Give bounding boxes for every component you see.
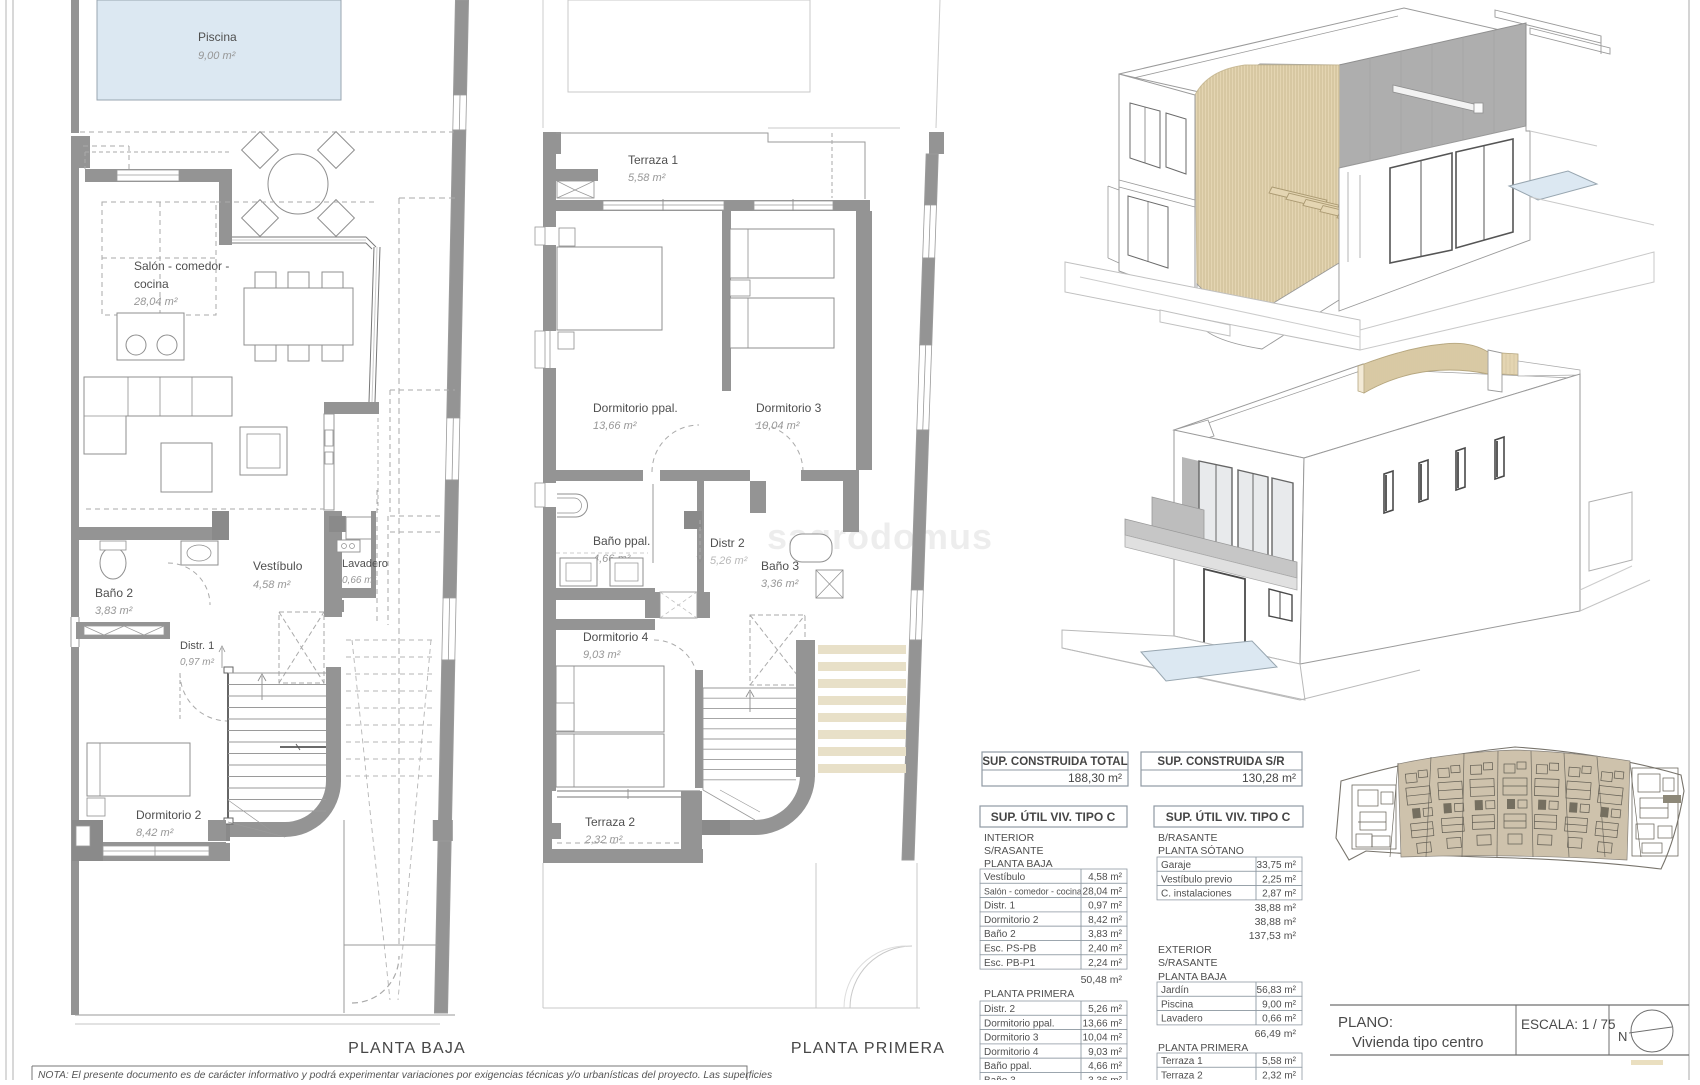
svg-text:INTERIOR: INTERIOR	[984, 832, 1035, 844]
svg-text:8,42 m²: 8,42 m²	[1088, 915, 1123, 926]
svg-text:Distr 2: Distr 2	[710, 536, 745, 550]
svg-text:188,30 m²: 188,30 m²	[1068, 771, 1122, 785]
svg-text:137,53 m²: 137,53 m²	[1249, 930, 1297, 942]
svg-text:Baño 2: Baño 2	[984, 929, 1016, 940]
svg-text:5,26 m²: 5,26 m²	[1088, 1004, 1123, 1015]
svg-text:9,03 m²: 9,03 m²	[1088, 1047, 1123, 1058]
svg-text:3,36 m²: 3,36 m²	[1088, 1076, 1123, 1081]
svg-text:33,75 m²: 33,75 m²	[1257, 860, 1297, 871]
svg-text:Dormitorio 4: Dormitorio 4	[583, 630, 649, 644]
svg-text:Lavadero: Lavadero	[1161, 1014, 1203, 1025]
svg-text:SUP. CONSTRUIDA TOTAL: SUP. CONSTRUIDA TOTAL	[982, 756, 1127, 768]
svg-text:Baño 2: Baño 2	[95, 586, 133, 600]
svg-text:Dormitorio 4: Dormitorio 4	[984, 1047, 1039, 1058]
svg-text:Salón - comedor - cocina: Salón - comedor - cocina	[984, 886, 1082, 896]
svg-text:Esc. PB-P1: Esc. PB-P1	[984, 958, 1036, 969]
svg-text:9,00 m²: 9,00 m²	[198, 50, 236, 62]
svg-text:PLANTA PRIMERA: PLANTA PRIMERA	[984, 988, 1074, 1000]
svg-text:38,88 m²: 38,88 m²	[1255, 902, 1297, 914]
svg-text:2,32 m²: 2,32 m²	[1262, 1070, 1297, 1080]
svg-text:Dormitorio 2: Dormitorio 2	[984, 915, 1039, 926]
svg-text:0,66 m²: 0,66 m²	[342, 575, 377, 586]
svg-text:SUP. CONSTRUIDA S/R: SUP. CONSTRUIDA S/R	[1157, 756, 1285, 768]
svg-text:13,66 m²: 13,66 m²	[1083, 1018, 1123, 1029]
svg-text:PLANTA BAJA: PLANTA BAJA	[1158, 971, 1227, 983]
svg-text:2,32 m²: 2,32 m²	[584, 834, 623, 846]
svg-text:3,83 m²: 3,83 m²	[1088, 929, 1123, 940]
svg-text:Dormitorio ppal.: Dormitorio ppal.	[984, 1018, 1055, 1029]
svg-text:10,04 m²: 10,04 m²	[756, 420, 800, 432]
svg-text:Vestíbulo: Vestíbulo	[253, 559, 303, 573]
svg-text:PLANTA PRIMERA: PLANTA PRIMERA	[791, 1040, 945, 1057]
svg-text:Distr. 1: Distr. 1	[180, 640, 214, 652]
svg-text:S/RASANTE: S/RASANTE	[1158, 957, 1218, 969]
svg-text:Terraza 2: Terraza 2	[585, 815, 635, 829]
svg-text:Dormitorio 3: Dormitorio 3	[756, 401, 822, 415]
svg-text:Vestíbulo previo: Vestíbulo previo	[1161, 874, 1233, 885]
svg-text:4,58 m²: 4,58 m²	[253, 579, 291, 591]
svg-text:Garaje: Garaje	[1161, 860, 1191, 871]
svg-text:Dormitorio ppal.: Dormitorio ppal.	[593, 401, 678, 415]
svg-text:Baño ppal.: Baño ppal.	[593, 534, 650, 548]
svg-text:Dormitorio 3: Dormitorio 3	[984, 1033, 1039, 1044]
svg-text:9,00 m²: 9,00 m²	[1262, 999, 1297, 1010]
svg-text:PLANTA PRIMERA: PLANTA PRIMERA	[1158, 1042, 1248, 1054]
svg-text:Vestíbulo: Vestíbulo	[984, 872, 1026, 883]
svg-text:SUP. ÚTIL VIV. TIPO C: SUP. ÚTIL VIV. TIPO C	[1166, 809, 1291, 824]
svg-text:5,26 m²: 5,26 m²	[710, 555, 748, 567]
svg-text:Terraza 1: Terraza 1	[1161, 1056, 1203, 1067]
svg-text:50,48 m²: 50,48 m²	[1081, 974, 1123, 986]
svg-text:8,42 m²: 8,42 m²	[136, 827, 174, 839]
svg-text:3,83 m²: 3,83 m²	[95, 605, 133, 617]
svg-text:PLANO:: PLANO:	[1338, 1014, 1393, 1031]
svg-text:38,88 m²: 38,88 m²	[1255, 916, 1297, 928]
svg-text:PLANTA BAJA: PLANTA BAJA	[984, 858, 1053, 870]
svg-text:Terraza 1: Terraza 1	[628, 153, 678, 167]
svg-text:B/RASANTE: B/RASANTE	[1158, 832, 1218, 844]
svg-text:EXTERIOR: EXTERIOR	[1158, 944, 1212, 956]
svg-text:0,66 m²: 0,66 m²	[1262, 1014, 1297, 1025]
svg-text:Lavadero: Lavadero	[342, 558, 388, 570]
svg-text:Dormitorio 2: Dormitorio 2	[136, 808, 202, 822]
svg-text:N: N	[1618, 1029, 1627, 1044]
svg-text:5,58 m²: 5,58 m²	[628, 172, 666, 184]
svg-text:Distr. 1: Distr. 1	[984, 901, 1016, 912]
svg-text:C. instalaciones: C. instalaciones	[1161, 889, 1232, 900]
svg-text:0,97 m²: 0,97 m²	[1088, 901, 1123, 912]
svg-text:10,04 m²: 10,04 m²	[1083, 1033, 1123, 1044]
svg-text:Salón - comedor -: Salón - comedor -	[134, 259, 229, 273]
svg-text:Jardín: Jardín	[1161, 985, 1189, 996]
svg-text:S/RASANTE: S/RASANTE	[984, 845, 1044, 857]
svg-text:2,25 m²: 2,25 m²	[1262, 874, 1297, 885]
svg-text:Terraza 2: Terraza 2	[1161, 1070, 1203, 1080]
svg-text:Distr. 2: Distr. 2	[984, 1004, 1016, 1015]
svg-text:4,66 m²: 4,66 m²	[1088, 1061, 1123, 1072]
svg-text:cocina: cocina	[134, 277, 169, 291]
svg-text:PLANTA BAJA: PLANTA BAJA	[348, 1040, 466, 1057]
svg-text:56,83 m²: 56,83 m²	[1257, 985, 1297, 996]
svg-text:NOTA: El presente documento es: NOTA: El presente documento es de caráct…	[38, 1070, 772, 1080]
svg-text:2,40 m²: 2,40 m²	[1088, 944, 1123, 955]
svg-text:0,97 m²: 0,97 m²	[180, 657, 215, 668]
svg-text:13,66 m²: 13,66 m²	[593, 420, 637, 432]
svg-text:Baño 3: Baño 3	[761, 559, 799, 573]
svg-text:66,49 m²: 66,49 m²	[1255, 1028, 1297, 1040]
svg-text:130,28 m²: 130,28 m²	[1242, 771, 1296, 785]
svg-text:3,36 m²: 3,36 m²	[761, 578, 799, 590]
svg-text:2,87 m²: 2,87 m²	[1262, 889, 1297, 900]
svg-text:ESCALA: 1 / 75: ESCALA: 1 / 75	[1521, 1017, 1616, 1032]
svg-text:Vivienda tipo centro: Vivienda tipo centro	[1352, 1034, 1483, 1051]
svg-text:28,04 m²: 28,04 m²	[133, 296, 178, 308]
svg-text:Piscina: Piscina	[198, 30, 237, 44]
svg-text:Baño 3: Baño 3	[984, 1076, 1016, 1081]
svg-text:Piscina: Piscina	[1161, 999, 1194, 1010]
svg-text:PLANTA SÓTANO: PLANTA SÓTANO	[1158, 844, 1244, 857]
svg-text:Baño ppal.: Baño ppal.	[984, 1061, 1032, 1072]
svg-text:2,24 m²: 2,24 m²	[1088, 958, 1123, 969]
svg-text:SUP. ÚTIL VIV. TIPO C: SUP. ÚTIL VIV. TIPO C	[991, 809, 1116, 824]
svg-text:28,04 m²: 28,04 m²	[1083, 886, 1123, 897]
svg-text:5,58 m²: 5,58 m²	[1262, 1056, 1297, 1067]
svg-text:4,58 m²: 4,58 m²	[1088, 872, 1123, 883]
svg-text:Esc. PS-PB: Esc. PS-PB	[984, 944, 1037, 955]
svg-text:9,03 m²: 9,03 m²	[583, 649, 621, 661]
